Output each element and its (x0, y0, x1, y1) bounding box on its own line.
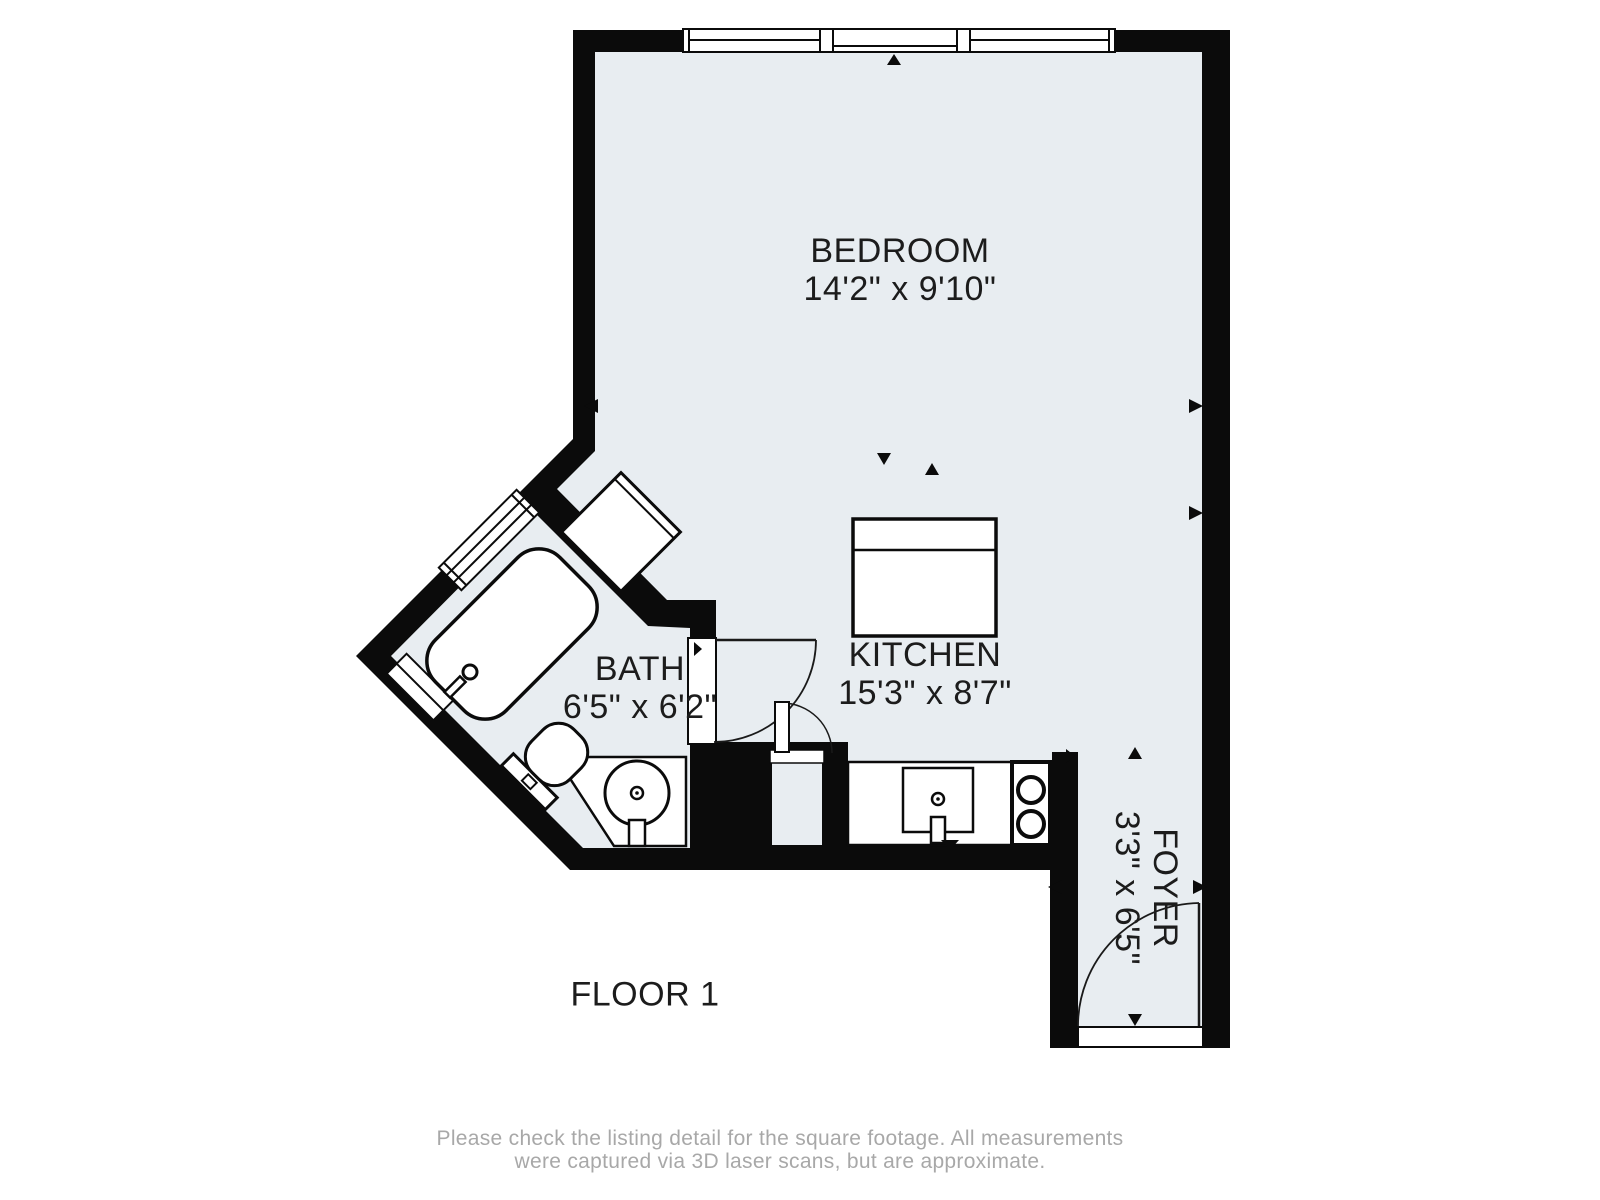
foyer-label: FOYER 3'3" x 6'5" (1108, 811, 1184, 965)
bedroom-dimensions: 14'2" x 9'10" (804, 270, 997, 308)
bath-dimensions: 6'5" x 6'2" (563, 688, 717, 726)
foyer-name: FOYER (1146, 811, 1184, 965)
stove (1012, 762, 1050, 845)
closet-floor (772, 763, 822, 845)
bath-name: BATH (563, 650, 717, 688)
disclaimer: Please check the listing detail for the … (437, 1127, 1124, 1173)
bathtub-faucet (463, 665, 477, 679)
kitchen-sink-drain-dot (936, 797, 940, 801)
bath-label: BATH 6'5" x 6'2" (563, 650, 717, 726)
bath-sink-faucet (629, 820, 645, 846)
kitchen-dimensions: 15'3" x 8'7" (838, 674, 1012, 712)
closet-door-leaf (775, 702, 789, 752)
bedroom-name: BEDROOM (804, 232, 997, 270)
window-band-top (683, 29, 1115, 52)
bath-sink-drain-dot (635, 791, 639, 795)
kitchen-name: KITCHEN (838, 636, 1012, 674)
floorplan-svg (0, 0, 1600, 1200)
foyer-dimensions: 3'3" x 6'5" (1108, 811, 1146, 965)
disclaimer-line2: were captured via 3D laser scans, but ar… (437, 1150, 1124, 1173)
kitchen-label: KITCHEN 15'3" x 8'7" (838, 636, 1012, 712)
stove-burner-2 (1018, 811, 1044, 837)
kitchen-faucet (931, 817, 945, 843)
floorplan-page: BEDROOM 14'2" x 9'10" KITCHEN 15'3" x 8'… (0, 0, 1600, 1200)
kitchen-island (853, 519, 996, 636)
entry-door-threshold (1078, 1027, 1203, 1047)
stove-burner-1 (1018, 777, 1044, 803)
floor-label: FLOOR 1 (571, 976, 720, 1015)
bedroom-label: BEDROOM 14'2" x 9'10" (804, 232, 997, 308)
disclaimer-line1: Please check the listing detail for the … (437, 1127, 1124, 1150)
